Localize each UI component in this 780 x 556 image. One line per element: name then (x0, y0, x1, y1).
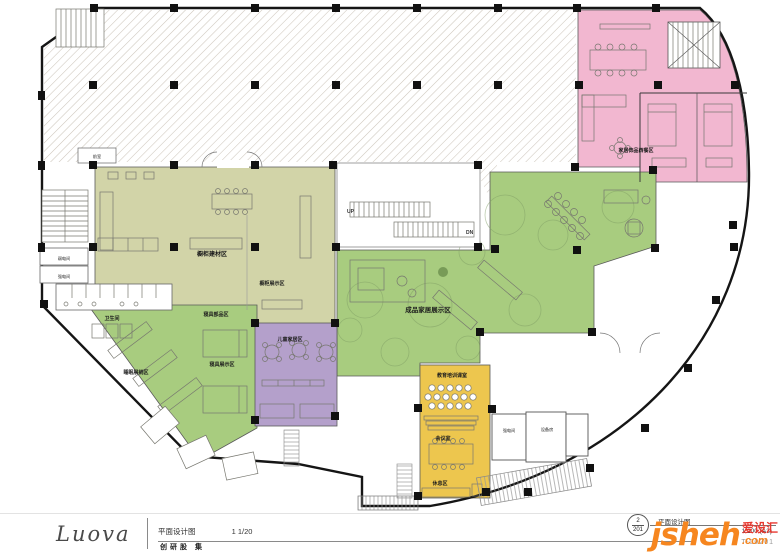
label-strong-power-2: 强电间 (503, 427, 516, 434)
drawing-name: 平面设计图 (158, 527, 196, 536)
label-bedding-display: 寝具展示区 (208, 361, 234, 368)
label-bedding-parts: 寝具部品区 (202, 311, 228, 318)
label-training-room: 教育培训课室 (436, 372, 467, 379)
label-front-room: 前室 (93, 153, 101, 160)
watermark-suffix: .com (742, 535, 778, 547)
label-cabinet-materials: 橱柜建材区 (197, 250, 227, 258)
watermark-name: jsheh (651, 520, 740, 550)
floor-plan-canvas: UP DN (0, 0, 780, 513)
escalator-hall: UP DN (337, 163, 480, 247)
label-kids-home: 儿童家居区 (276, 336, 302, 343)
escalator-down (394, 222, 474, 237)
up-label: UP (347, 209, 355, 215)
label-meeting-room: 会议室 (434, 435, 450, 442)
label-weak-power: 弱电间 (58, 255, 71, 262)
label-restroom: 卫生间 (104, 315, 119, 322)
label-sleep-display: 睡眠展销区 (123, 369, 148, 376)
sheet-number-symbol: 2 201 (627, 514, 649, 536)
stair-top-right (668, 22, 720, 68)
stair-left-edge (42, 190, 88, 242)
dn-label: DN (466, 230, 474, 236)
title-block-divider (147, 518, 148, 549)
label-rest-area: 休息区 (431, 480, 447, 487)
site-watermark: jsheh 爱设汇 .com (651, 520, 778, 550)
label-equipment-room: 设备房 (541, 426, 554, 433)
drawing-title-row: 平面设计图 1 1/20 (158, 526, 692, 542)
title-block: Luova 平面设计图 1 1/20 创研股 集 2 201 平面设计图 1:2… (0, 513, 780, 556)
company-logo: Luova (56, 522, 131, 546)
floor-plan-drawing: UP DN (0, 0, 780, 513)
watermark-chinese: 爱设汇 (742, 522, 778, 535)
drawing-subtitle: 创研股 集 (160, 542, 205, 552)
label-cabinet-display: 橱柜展示区 (259, 280, 284, 287)
sheet-number-top: 2 (632, 517, 643, 526)
label-finished-home: 成品家居展示区 (405, 305, 451, 314)
escalator-up (350, 202, 430, 217)
label-strong-power: 强电间 (58, 273, 71, 280)
label-home-dining: 家居饰品西餐区 (618, 147, 653, 154)
stair-top-left (56, 9, 104, 47)
sheet-number-bottom: 201 (633, 526, 643, 534)
drawing-scale: 1 1/20 (232, 527, 253, 536)
